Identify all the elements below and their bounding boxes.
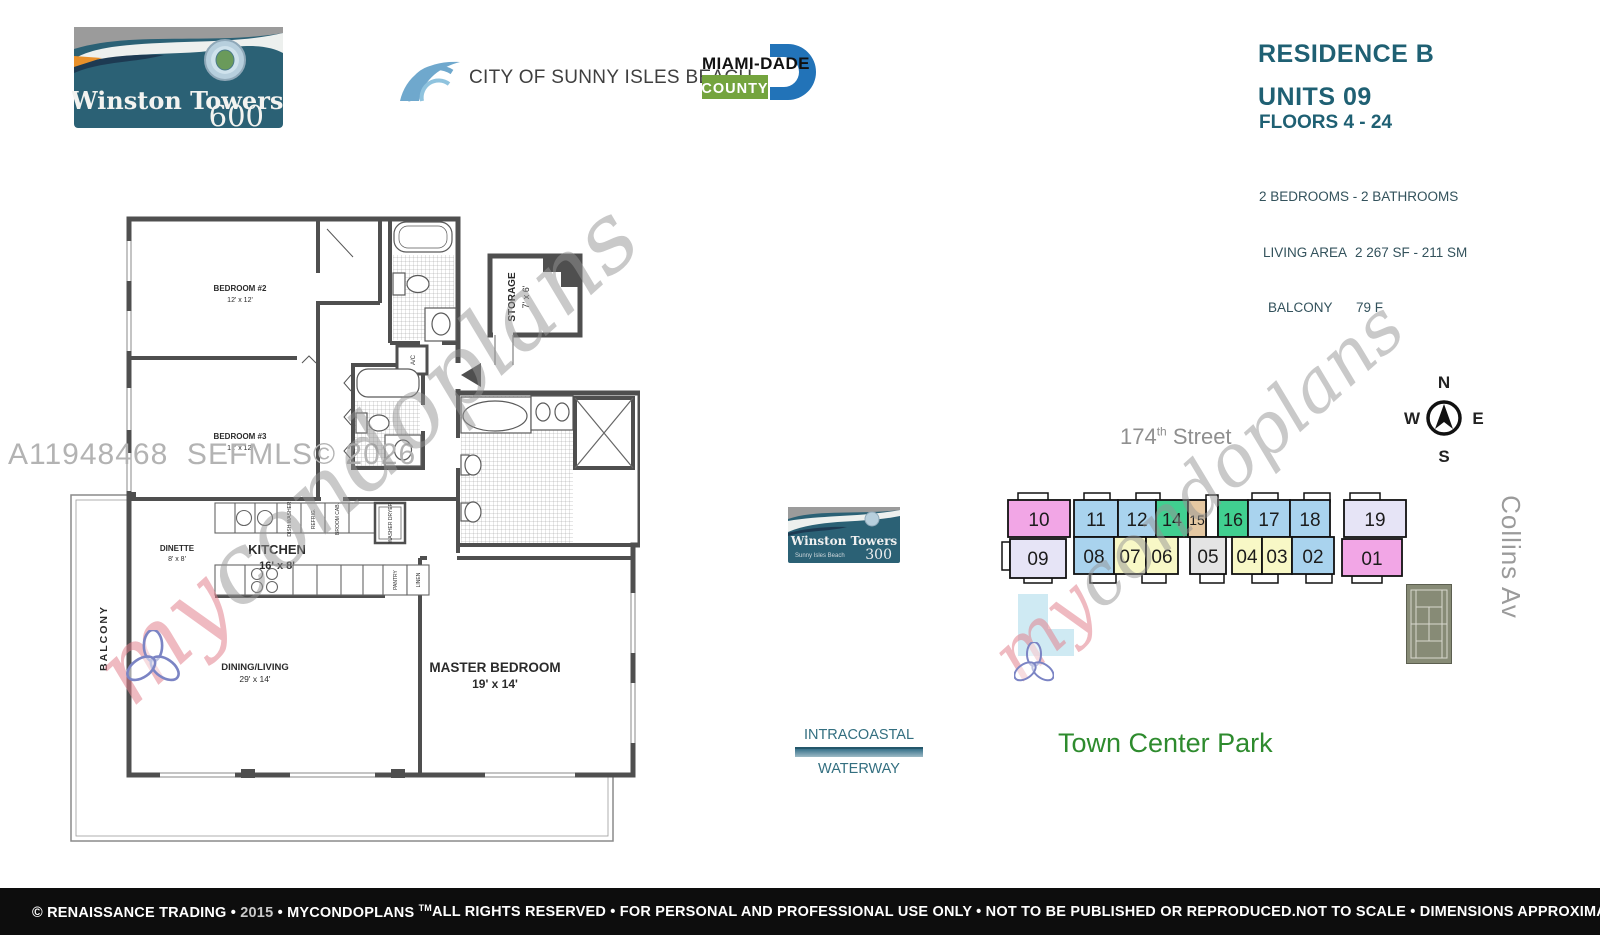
logo-300-title: Winston Towers	[790, 534, 898, 548]
svg-text:08: 08	[1083, 547, 1104, 568]
master-bathroom	[461, 396, 573, 543]
storage-label: STORAGE	[507, 272, 518, 322]
shaft	[575, 398, 633, 468]
footer-rights: ALL RIGHTS RESERVED • FOR PERSONAL AND P…	[432, 904, 1296, 920]
winston-towers-300-logo: Winston Towers Sunny Isles Beach 300	[787, 506, 901, 564]
compass-e: E	[1472, 409, 1483, 428]
compass-rose: N W E S	[1398, 366, 1490, 466]
svg-text:01: 01	[1361, 549, 1382, 570]
floors-subtitle: FLOORS 4 - 24	[1259, 112, 1392, 134]
svg-text:06: 06	[1151, 547, 1172, 568]
spec-bedrooms: 2 BEDROOMS - 2 BATHROOMS	[1259, 188, 1467, 207]
svg-text:PANTRY: PANTRY	[393, 569, 399, 589]
building-unit-map: 10 11 12 14 15 16 17 18 19 09 08 07 06 0…	[1000, 490, 1420, 586]
svg-text:DISH WASHER: DISH WASHER	[287, 501, 293, 536]
floorplan-drawing: A/C	[65, 213, 640, 853]
balcony-label: BALCONY	[98, 605, 110, 671]
county-text: COUNTY	[701, 81, 768, 97]
tennis-court	[1406, 584, 1452, 664]
sunny-isles-wave-icon	[396, 55, 462, 103]
spec-living-area: LIVING AREA2 267 SF - 211 SM	[1259, 244, 1467, 263]
dinette-dims: 8' x 8'	[168, 556, 186, 563]
trefoil-flower-icon	[126, 630, 180, 690]
svg-text:WASHER DRYER: WASHER DRYER	[388, 502, 394, 543]
compass-w: W	[1404, 409, 1421, 428]
winston-towers-600-logo: Winston Towers 600	[72, 25, 285, 130]
logo-300-number: 300	[865, 547, 892, 563]
intracoastal-waterway-label: INTRACOASTAL WATERWAY	[793, 727, 925, 777]
svg-text:11: 11	[1086, 510, 1106, 531]
trefoil-flower-icon	[1014, 642, 1054, 688]
master-dims: 19' x 14'	[472, 677, 518, 691]
kitchen-dims: 16' x 8'	[259, 560, 295, 572]
bedroom2-dims: 12' x 12'	[227, 297, 253, 304]
svg-text:03: 03	[1266, 547, 1287, 568]
svg-text:19: 19	[1364, 510, 1385, 531]
svg-text:18: 18	[1299, 510, 1320, 531]
floorplan-page: Winston Towers 600 CITY OF SUNNY ISLES B…	[0, 0, 1600, 935]
footer-bar: © RENAISSANCE TRADING • 2015 • MYCONDOPL…	[0, 888, 1600, 935]
footer-copyright: © RENAISSANCE TRADING • 2015 • MYCONDOPL…	[32, 903, 432, 921]
svg-text:04: 04	[1236, 547, 1258, 568]
north-arrow-icon	[1435, 404, 1453, 429]
svg-text:05: 05	[1197, 547, 1218, 568]
svg-text:10: 10	[1028, 510, 1049, 531]
svg-text:REFRIG.: REFRIG.	[311, 509, 317, 529]
dinette-label: DINETTE	[160, 544, 195, 553]
svg-text:07: 07	[1119, 547, 1140, 568]
mls-watermark: A11948468 SEFMLS© 2026	[8, 438, 416, 472]
spec-balcony: BALCONY79 F	[1259, 299, 1467, 318]
footer-disclaimer: NOT TO SCALE • DIMENSIONS APPROXIMATE	[1296, 904, 1600, 920]
entry-opening	[455, 363, 461, 389]
ac-label: A/C	[411, 354, 417, 365]
bedroom2-label: BEDROOM #2	[214, 284, 267, 293]
master-label: MASTER BEDROOM	[429, 660, 560, 675]
svg-text:15: 15	[1189, 512, 1205, 528]
residence-title: RESIDENCE B	[1258, 40, 1434, 69]
storage-room	[490, 256, 580, 365]
entry-arrow-icon	[461, 363, 481, 387]
svg-text:14: 14	[1162, 510, 1182, 530]
svg-text:09: 09	[1027, 549, 1048, 570]
unit-specs: 2 BEDROOMS - 2 BATHROOMS LIVING AREA2 26…	[1259, 151, 1467, 355]
bathroom-2	[393, 222, 456, 341]
logo-600-number: 600	[209, 99, 264, 130]
miami-dade-county-logo: MIAMI-DADE COUNTY	[700, 42, 822, 104]
logo-300-sub: Sunny Isles Beach	[795, 553, 845, 559]
miami-dade-text: MIAMI-DADE	[702, 54, 810, 73]
town-center-park-label: Town Center Park	[1058, 728, 1278, 759]
waterway-bar	[795, 747, 923, 757]
compass-s: S	[1438, 447, 1449, 466]
dining-dims: 29' x 14'	[239, 674, 271, 684]
street-label: 174th Street	[1120, 424, 1232, 450]
units-title: UNITS 09	[1258, 83, 1372, 112]
storage-dims: 7' x 6'	[521, 285, 531, 308]
svg-text:LINEN: LINEN	[416, 572, 422, 587]
collins-av-label: Collins Av	[1498, 477, 1526, 637]
dining-label: DINING/LIVING	[221, 662, 289, 673]
svg-text:02: 02	[1302, 547, 1323, 568]
kitchen-label: KITCHEN	[248, 542, 306, 557]
compass-n: N	[1438, 373, 1450, 392]
svg-text:BROOM CAB.: BROOM CAB.	[335, 503, 341, 535]
svg-text:17: 17	[1258, 510, 1279, 531]
svg-text:12: 12	[1126, 510, 1147, 531]
svg-text:16: 16	[1223, 510, 1243, 530]
